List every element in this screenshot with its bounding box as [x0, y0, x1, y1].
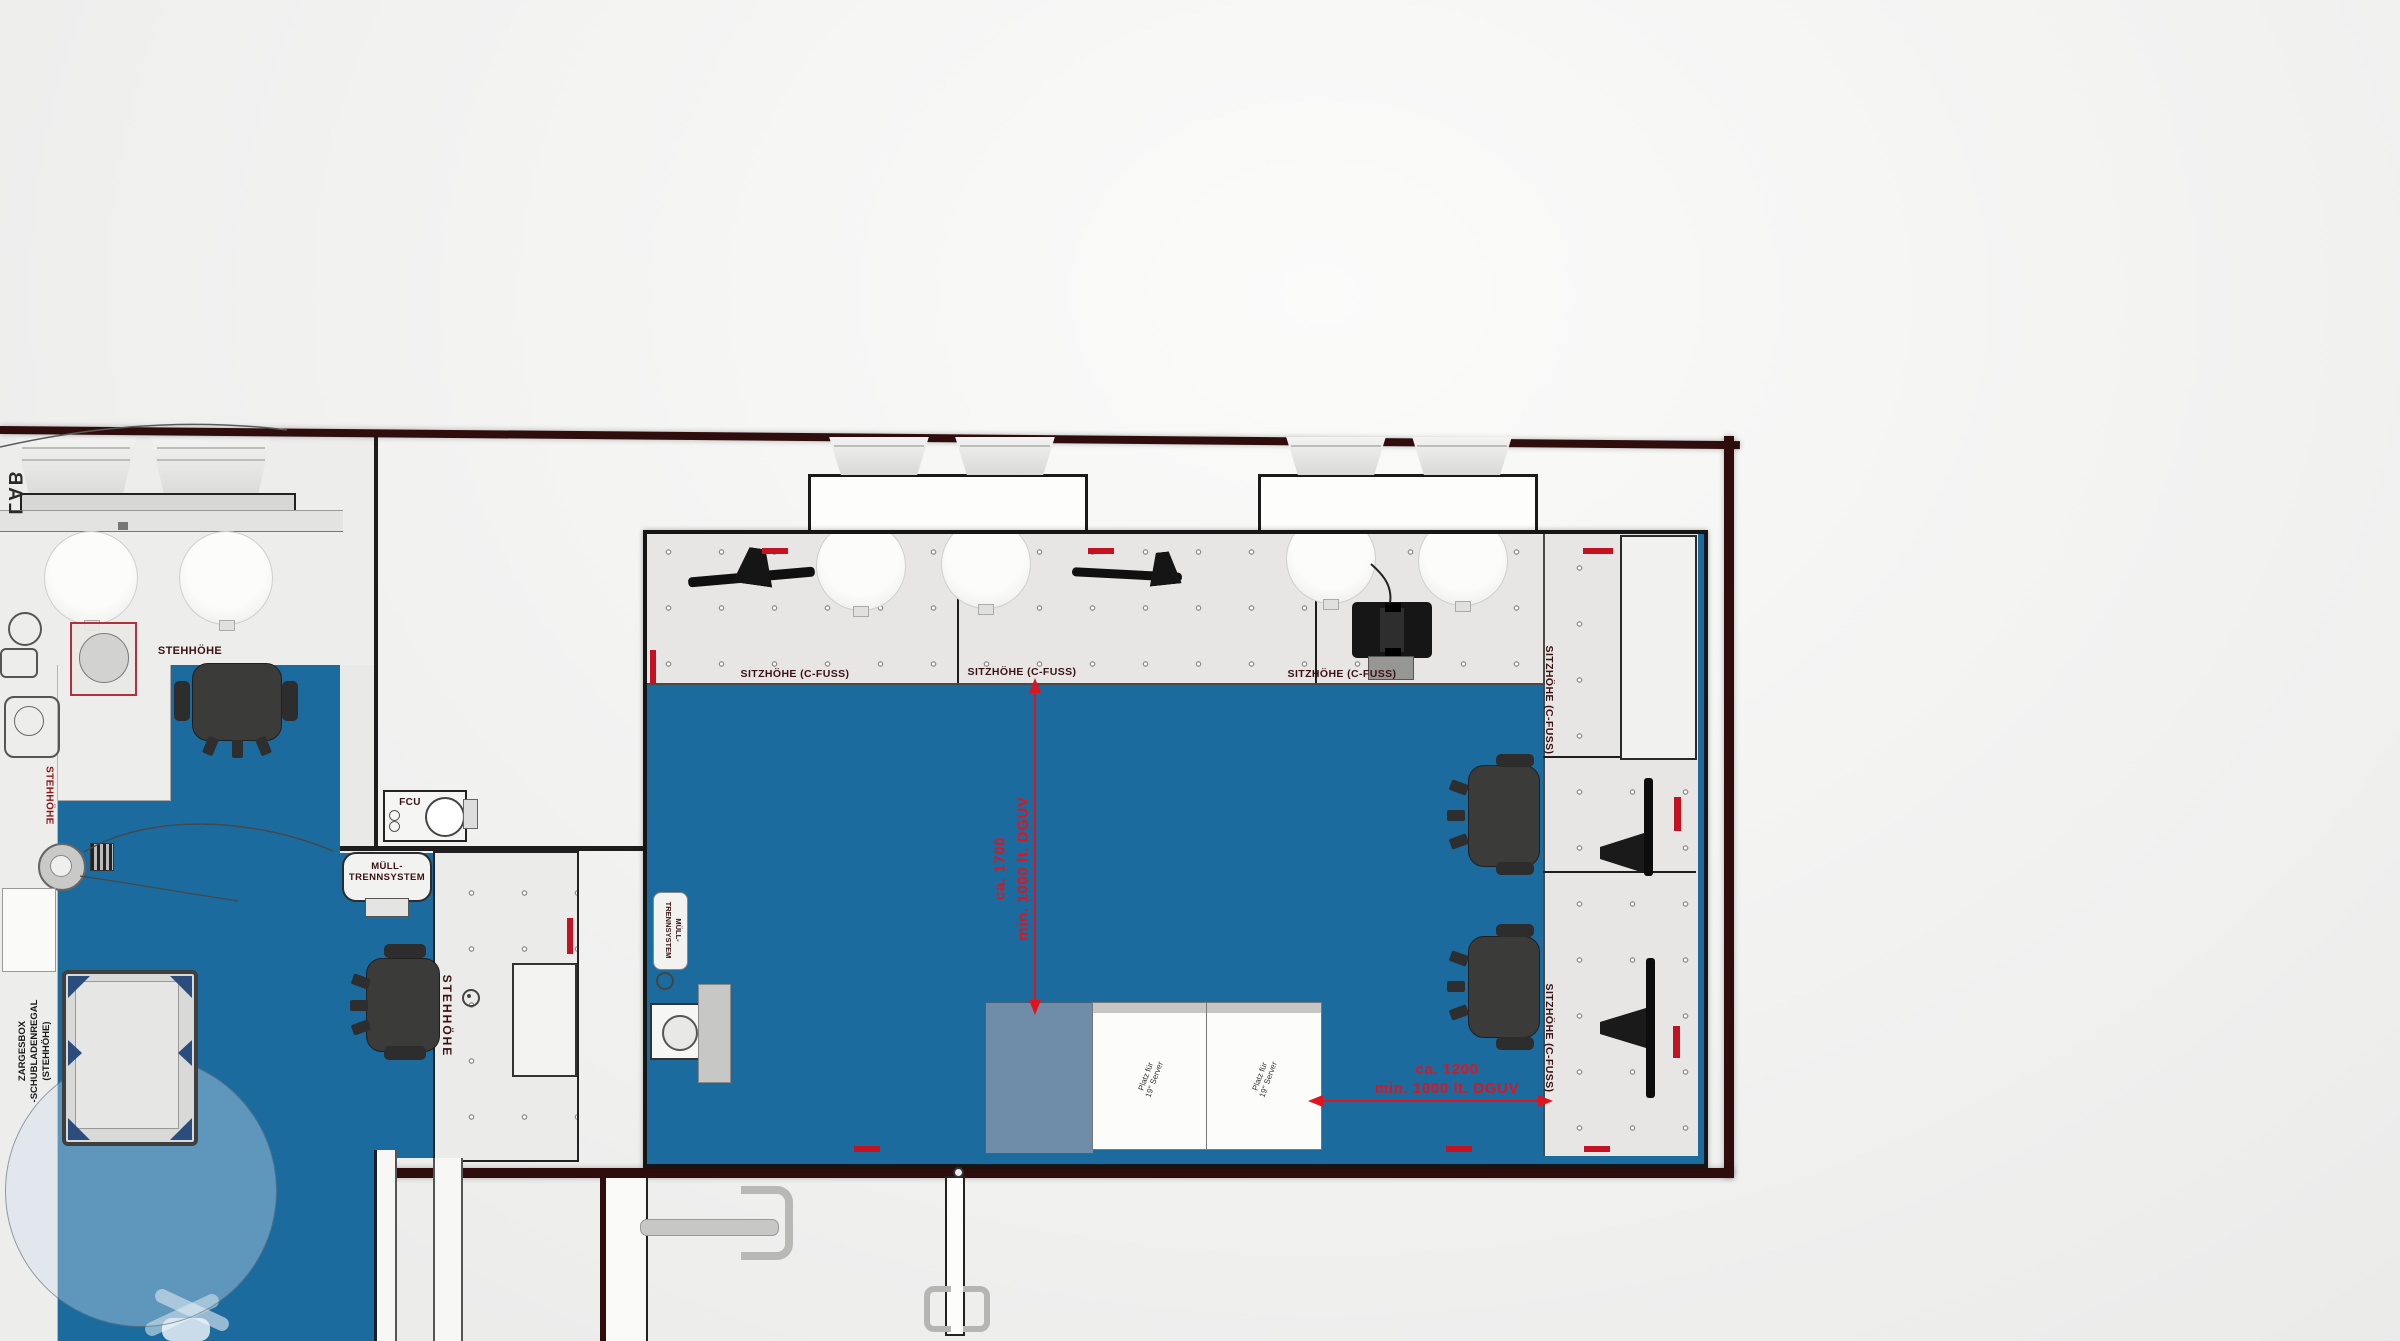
printer-latch [1385, 603, 1401, 612]
power-strip [650, 650, 656, 683]
dimension-vertical-approx: ca. 1700 [992, 789, 1009, 949]
chair-armrest [1496, 1037, 1534, 1050]
monitor-symbol [1644, 778, 1653, 876]
fcu-fan [425, 797, 465, 837]
tall-cabinet [1620, 535, 1697, 760]
dimension-horizontal-line [1322, 1100, 1538, 1102]
waste-label-line2: TRENNSYSTEM [344, 872, 430, 883]
server-cabinet: Platz für 19" Server [1206, 1002, 1322, 1150]
power-strip [1674, 797, 1681, 831]
ch​air-leg [350, 1000, 368, 1011]
side-table-steel-blue [985, 1002, 1094, 1154]
zargesbox-lid [75, 981, 179, 1129]
task-chair [170, 655, 300, 760]
chair-base [853, 606, 869, 617]
chair-seat [1468, 765, 1540, 867]
chair-armrest [1496, 862, 1534, 875]
corridor-wall [374, 430, 378, 848]
waste-box-tab [365, 898, 409, 917]
dimension-vertical-minimum: min. 1000 lt. DGUV [1015, 789, 1032, 949]
chair-base [1323, 599, 1339, 610]
room-tag-lab: LAB [3, 452, 25, 532]
task-chair [346, 938, 446, 1066]
bench-clip [118, 522, 128, 530]
power-strip [1088, 548, 1114, 554]
utility-panel [698, 984, 731, 1083]
desk-divider [1543, 871, 1696, 873]
zargesbox [62, 970, 198, 1146]
fcu-label: FCU [393, 797, 427, 808]
stool-symbol [44, 531, 138, 625]
zargesbox-annotation-line2: -SCHUBLADENREGAL [29, 998, 41, 1104]
power-strip [762, 548, 788, 554]
visitor-chair-symbol [952, 437, 1058, 475]
office-room: SITZHÖHE (C-FUSS) SITZHÖHE (C-FUSS) SITZ… [643, 530, 1708, 1168]
chair-seat [192, 663, 282, 741]
chair-base [978, 604, 994, 615]
door-handle [924, 1286, 951, 1332]
zargesbox-annotation-line3: (STEHHÖHE) [41, 998, 53, 1104]
waste-label-line1: MÜLL- [673, 880, 683, 980]
fixture-outline [14, 706, 44, 736]
power-strip [567, 918, 573, 954]
zargesbox-annotation: ZARGESBOX -SCHUBLADENREGAL (STEHHÖHE) [17, 998, 53, 1104]
striped-clamp [90, 843, 114, 871]
task-chair [1442, 752, 1542, 882]
chair-armrest [282, 681, 298, 721]
waste-label-vertical: MÜLL- TRENNSYSTEM [655, 880, 683, 980]
sink-symbol [70, 622, 137, 696]
swivel-arm-hub-core [50, 855, 72, 877]
cabinet-top-strip [1093, 1003, 1207, 1013]
chair-leg [1449, 833, 1470, 849]
visitor-desk [1258, 474, 1538, 537]
stool-symbol [179, 531, 273, 625]
wall-band [374, 1150, 397, 1341]
power-strip [1583, 548, 1613, 554]
chair-leg [1449, 779, 1470, 795]
server-cabinet-label: Platz für 19" Server [1102, 1024, 1199, 1133]
visitor-desk [808, 474, 1088, 537]
chair-seat [366, 958, 440, 1052]
chair-leg [1447, 981, 1465, 992]
bench-height-label-vertical: STEHHÖHE [44, 761, 55, 831]
floor-plan-canvas: LAB STEHHÖHE STEHHÖHE ZARGESBOX [0, 0, 2400, 1341]
visitor-chair-symbol [1409, 437, 1515, 475]
dimension-arrow-down-icon [1029, 1000, 1041, 1015]
visitor-chair-symbol [826, 437, 932, 475]
dimension-horizontal-approx: ca. 1200 [1367, 1061, 1527, 1078]
grommet-dot [467, 994, 471, 998]
side-gray-band [340, 665, 374, 853]
chair-seat [1468, 936, 1540, 1038]
waste-label-line1: MÜLL- [344, 861, 430, 872]
door-frame-band [600, 1178, 648, 1341]
stool-base [219, 620, 235, 631]
lab-bench-front [0, 510, 343, 532]
printer-slot [1380, 608, 1404, 652]
monitor-symbol [1646, 958, 1655, 1098]
chair-armrest [174, 681, 190, 721]
fixture-outline [8, 612, 42, 646]
chair-leg [1449, 1004, 1470, 1020]
desk-label-seat-height: SITZHÖHE (C-FUSS) [932, 666, 1112, 678]
lab-chair-symbol [12, 437, 140, 499]
wall-right [1724, 436, 1734, 1178]
desk-cabinet [512, 963, 577, 1077]
fan-coil-unit: FCU [383, 790, 467, 842]
lab-chair-symbol [147, 437, 275, 499]
grommet-symbol [656, 972, 674, 990]
chair-base [1455, 601, 1471, 612]
wall-band [433, 1158, 463, 1341]
desk-label-seat-height: SITZHÖHE (C-FUSS) [705, 668, 885, 680]
wall-bottom [390, 1168, 1734, 1178]
zargesbox-annotation-line1: ZARGESBOX [17, 998, 29, 1104]
chair-leg [1447, 810, 1465, 821]
task-chair [1442, 919, 1542, 1054]
chair-leg [232, 740, 243, 758]
cabinet-top-strip [1207, 1003, 1321, 1013]
chair-leg [1449, 950, 1470, 966]
dimension-arrow-left-icon [1308, 1095, 1323, 1107]
grommet-symbol [462, 989, 480, 1007]
desk-label-seat-height-vertical: SITZHÖHE (C-FUSS) [1543, 620, 1555, 780]
visitor-chair-symbol [1283, 437, 1389, 475]
dimension-vertical-line [1034, 692, 1036, 1000]
fcu-port [389, 810, 400, 821]
floor-marker [1584, 1146, 1610, 1152]
chair-armrest [1496, 754, 1534, 767]
door-handle [963, 1286, 990, 1332]
power-strip [1673, 1026, 1680, 1058]
chair-armrest [384, 1046, 426, 1060]
fcu-port [389, 821, 400, 832]
whiteboard-panel [2, 888, 56, 972]
printer-symbol [1352, 602, 1432, 658]
floor-marker [1446, 1146, 1472, 1152]
server-cabinet-label: Platz für 19" Server [1216, 1024, 1313, 1133]
door-hinge-dot [953, 1167, 964, 1178]
chair-armrest [1496, 924, 1534, 937]
server-cabinet: Platz für 19" Server [1092, 1002, 1208, 1150]
dimension-horizontal-minimum: min. 1000 lt. DGUV [1335, 1080, 1559, 1097]
fcu-fan [662, 1015, 698, 1051]
waste-label-line2: TRENNSYSTEM [663, 880, 673, 980]
fan-coil-unit-small [650, 1003, 701, 1060]
floor-marker [854, 1146, 880, 1152]
fcu-side-tab [463, 799, 478, 829]
door-handle [741, 1186, 793, 1260]
fixture-outline [0, 648, 38, 678]
standing-desk: STEHHÖHE [433, 851, 579, 1162]
chair-armrest [384, 944, 426, 958]
sink-bowl [79, 633, 129, 683]
waste-separation-box: MÜLL- TRENNSYSTEM [342, 852, 432, 902]
desk-label-seat-height: SITZHÖHE (C-FUSS) [1252, 668, 1432, 680]
edge-pad [178, 1040, 192, 1066]
dimension-arrow-up-icon [1029, 678, 1041, 693]
